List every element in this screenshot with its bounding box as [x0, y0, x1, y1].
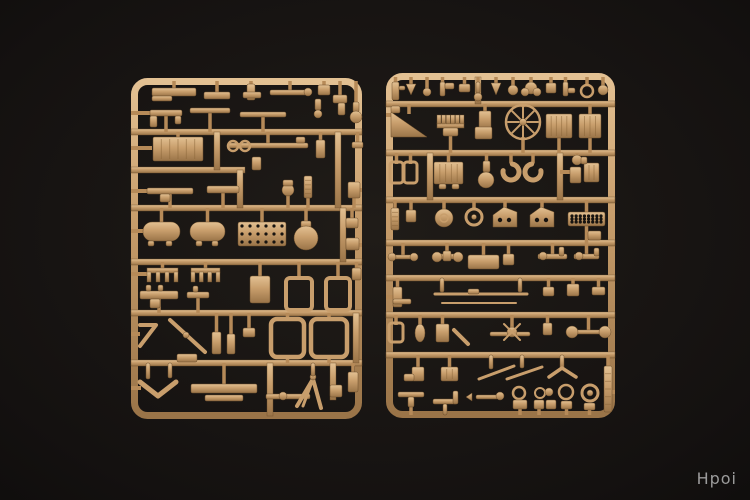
runner-bar	[386, 352, 615, 358]
rect-part	[445, 83, 454, 89]
rect-part	[534, 400, 544, 409]
tooth	[437, 115, 441, 124]
c-hook	[503, 164, 519, 180]
part-hole	[544, 218, 548, 222]
tooth	[216, 272, 220, 282]
rect-part	[440, 82, 445, 96]
plate-hole	[587, 220, 590, 223]
rect-part	[212, 241, 218, 246]
runner-bar	[557, 153, 563, 200]
rect-part	[315, 99, 321, 110]
circle-part	[423, 88, 431, 96]
circle-part	[572, 155, 582, 165]
rect-part	[404, 374, 414, 381]
funnel-part	[406, 84, 416, 95]
rect-part	[346, 218, 358, 228]
rect-part	[483, 161, 490, 172]
plate-hole	[264, 224, 267, 227]
rect-part	[570, 167, 581, 183]
ring-part	[535, 388, 545, 398]
holed-wedge	[493, 207, 517, 227]
tooth	[191, 272, 195, 282]
machine-gun	[140, 291, 178, 299]
rect-part	[243, 328, 255, 337]
rod-part	[507, 367, 542, 379]
plate-hole	[248, 232, 251, 235]
rect-part	[318, 85, 330, 95]
fuel-tank	[190, 222, 225, 241]
rect-part	[346, 238, 359, 250]
sprue-stub	[196, 296, 200, 313]
rect-part	[520, 355, 524, 368]
ribs-part	[584, 163, 599, 182]
rect-part	[453, 391, 458, 404]
rect-part	[581, 157, 587, 164]
part-hole	[498, 218, 502, 222]
pawn-part	[478, 172, 494, 188]
circle-part	[474, 93, 482, 101]
sprue-stub	[131, 332, 140, 336]
comb-part	[191, 268, 220, 282]
sprue-left	[131, 81, 363, 416]
rect-part	[196, 241, 202, 246]
rect-part	[475, 127, 492, 139]
circle-part	[599, 326, 611, 338]
sprue-stub	[261, 115, 265, 132]
plate-hole	[599, 220, 602, 223]
windshield-frame	[286, 278, 312, 310]
rect-part	[148, 241, 154, 246]
tooth	[147, 272, 151, 282]
rect-part	[559, 247, 564, 256]
rect-part	[204, 92, 230, 99]
rect-part	[392, 82, 399, 100]
rect-part	[227, 334, 235, 354]
sprue-stub	[260, 208, 264, 224]
rect-part	[348, 372, 358, 392]
rect-part	[476, 82, 480, 93]
rect-part	[330, 385, 342, 397]
runner-bar	[386, 101, 615, 107]
plate-hole	[570, 214, 573, 217]
rect-part	[146, 285, 151, 291]
plate-hole	[256, 240, 259, 243]
sprue-stub	[221, 191, 225, 208]
rect-part	[568, 88, 575, 93]
rect-part	[333, 95, 347, 103]
rect-part	[311, 363, 315, 376]
runner-bar	[427, 153, 433, 200]
rect-part	[546, 83, 556, 93]
sprue-stub	[588, 136, 592, 153]
frame-part	[404, 162, 417, 183]
sprue-stub	[160, 208, 164, 224]
tooth	[208, 272, 212, 282]
sprue-stub	[258, 262, 262, 278]
plate-hole	[595, 217, 598, 220]
rect-part	[250, 276, 270, 303]
crane-arm	[140, 325, 156, 346]
rect-part	[406, 210, 416, 222]
photo-stage: Hpoi	[0, 0, 750, 500]
rect-part	[468, 255, 499, 269]
ladder-rack	[604, 366, 612, 412]
circle-part	[432, 252, 442, 262]
rect-part	[187, 292, 209, 298]
runner-bar	[131, 167, 245, 173]
plate-hole	[583, 217, 586, 220]
rect-part	[353, 102, 359, 112]
runner-bar	[386, 197, 615, 203]
rect-part	[150, 299, 160, 308]
engine-block	[153, 137, 203, 161]
plate-hole	[272, 232, 275, 235]
runner-bar	[340, 208, 346, 262]
rect-part	[503, 254, 514, 265]
holed-wedge	[530, 207, 554, 227]
plate-hole	[587, 214, 590, 217]
plate-hole	[595, 220, 598, 223]
tooth	[446, 115, 450, 124]
runner-bar	[214, 132, 220, 170]
rect-part	[443, 251, 451, 261]
sprue-stub	[131, 272, 148, 276]
rect-part	[190, 108, 230, 113]
sprue-stub	[131, 111, 150, 115]
plate-hole	[280, 240, 283, 243]
rect-part	[594, 248, 599, 256]
sprue-scene	[0, 0, 750, 500]
perforated-plate	[238, 222, 286, 246]
sprue-stub	[354, 81, 358, 104]
rect-part	[584, 403, 595, 410]
bench-part	[150, 110, 182, 116]
tooth	[174, 272, 178, 282]
rect-part	[398, 392, 424, 397]
sprue-stub	[131, 146, 152, 150]
runner-bar	[131, 259, 362, 265]
wheel-spoke	[512, 111, 521, 120]
line-part	[454, 330, 468, 344]
plate-part	[191, 384, 257, 393]
rect-part	[243, 92, 261, 98]
rect-part	[439, 184, 446, 189]
plate-hole	[256, 232, 259, 235]
circle-part	[566, 326, 578, 338]
rect-part	[546, 400, 556, 409]
flask-part	[294, 226, 318, 250]
v-bracket	[140, 382, 176, 396]
rect-part	[150, 116, 157, 127]
fuel-tank	[143, 222, 180, 241]
tooth	[199, 272, 203, 282]
rect-part	[168, 363, 172, 378]
wheel-spoke	[512, 124, 521, 133]
rect-part	[177, 354, 197, 362]
plate-hole	[579, 217, 582, 220]
rect-part	[489, 355, 493, 369]
circle-part	[545, 388, 553, 396]
rect-part	[543, 323, 552, 335]
rect-part	[588, 231, 601, 240]
sprue-stub	[164, 114, 168, 132]
poly-part	[466, 393, 472, 401]
sprue-stub	[206, 208, 210, 224]
runner-bar	[353, 313, 359, 363]
rect-part	[563, 82, 568, 96]
rect-part	[207, 186, 239, 193]
sprue-stub	[208, 111, 212, 132]
hatch-box	[579, 114, 601, 138]
plate-hole	[599, 217, 602, 220]
rect-part	[348, 182, 360, 198]
plate-hole	[595, 214, 598, 217]
plate-hole	[575, 214, 578, 217]
plate-hole	[587, 217, 590, 220]
rect-part	[443, 404, 447, 415]
plate-hole	[575, 220, 578, 223]
runner-bar	[131, 205, 362, 211]
seat-frame	[311, 319, 347, 357]
wheel-spoke	[525, 124, 534, 133]
sprue-stub	[585, 224, 589, 243]
circle-part	[410, 253, 418, 261]
part-hole	[535, 218, 539, 222]
rect-part	[567, 284, 579, 296]
circle-part	[183, 332, 189, 338]
rect-part	[518, 278, 522, 292]
circle-part	[350, 111, 362, 123]
plate-hole	[240, 232, 243, 235]
syringe-part	[476, 395, 498, 399]
pulley	[513, 387, 525, 399]
plate-hole	[264, 240, 267, 243]
wedge-triangle	[391, 112, 427, 137]
lens-part	[415, 324, 425, 342]
watermark: Hpoi	[697, 469, 737, 488]
rect-part	[146, 363, 150, 379]
sprue-stub	[215, 313, 219, 334]
boot-part	[479, 111, 491, 129]
ring-part	[581, 85, 593, 97]
plate-hole	[583, 214, 586, 217]
plate-hole	[575, 217, 578, 220]
tooth	[455, 115, 459, 124]
plate-hole	[591, 214, 594, 217]
circle-part	[539, 252, 547, 260]
plate-hole	[272, 224, 275, 227]
sprue-stub	[131, 386, 141, 390]
circle-part	[521, 88, 529, 96]
circle-part	[496, 392, 504, 400]
runner-bar	[267, 363, 273, 416]
tooth	[442, 115, 446, 124]
rect-part	[283, 180, 293, 186]
circle-part	[472, 215, 477, 220]
circle-part	[279, 392, 287, 400]
rect-part	[240, 112, 286, 117]
rifle	[147, 188, 193, 194]
sprue-stub	[229, 313, 233, 336]
plate-hole	[264, 232, 267, 235]
rect-part	[152, 96, 172, 101]
ladder-part	[391, 208, 399, 230]
plate-hole	[583, 220, 586, 223]
plate-hole	[591, 220, 594, 223]
spoked-wheel	[506, 105, 540, 139]
rect-part	[296, 137, 305, 143]
circle-part	[587, 390, 593, 396]
wheel-hub	[520, 119, 527, 126]
spade-part	[491, 83, 501, 95]
plate-hole	[570, 220, 573, 223]
ribs-part	[441, 367, 458, 381]
circle-part	[598, 85, 608, 95]
plate-hole	[240, 224, 243, 227]
sprue-stub	[338, 81, 342, 97]
plate-hole	[570, 217, 573, 220]
rect-part	[352, 142, 363, 148]
sprue-stub	[222, 363, 226, 386]
ladder-part	[304, 176, 312, 198]
rect-part	[452, 184, 459, 189]
rect-part	[436, 324, 449, 342]
circle-part	[508, 85, 518, 95]
runner-bar	[335, 132, 341, 208]
rect-part	[338, 103, 345, 115]
tooth	[156, 272, 160, 282]
plate-hole	[591, 217, 594, 220]
sprue-stub	[557, 136, 561, 153]
dome-cap	[435, 209, 453, 227]
grille-strip	[568, 212, 605, 226]
rect-part	[513, 400, 527, 409]
plate-hole	[599, 214, 602, 217]
circle-part	[304, 88, 312, 96]
rect-part	[561, 401, 572, 409]
rect-part	[158, 285, 163, 291]
windshield-frame	[326, 278, 350, 310]
rect-part	[443, 128, 458, 136]
seat-frame	[271, 319, 304, 357]
sprue-stub	[560, 170, 570, 174]
wheel-spoke	[525, 111, 534, 120]
sprue-stub	[407, 104, 411, 114]
circle-part	[575, 252, 583, 260]
comb-part	[437, 115, 464, 128]
runner-bar	[386, 240, 615, 246]
rect-part	[352, 268, 361, 280]
sprue-stub	[587, 315, 591, 332]
sprue-stub	[247, 313, 251, 330]
rect-part	[408, 397, 414, 407]
comb-part	[147, 268, 178, 282]
rect-part	[459, 84, 470, 92]
circle-part	[388, 253, 396, 261]
c-hook	[525, 164, 541, 180]
sprue-stub	[386, 295, 393, 299]
rect-part	[543, 287, 554, 296]
tooth	[460, 115, 464, 124]
plate-hole	[240, 240, 243, 243]
runner-bar	[386, 150, 615, 156]
plate-hole	[248, 240, 251, 243]
circle-part	[314, 110, 322, 118]
sprue-stub	[131, 189, 147, 193]
sprue-stub	[131, 229, 143, 233]
rect-part	[175, 116, 181, 124]
plate-hole	[248, 224, 251, 227]
circle-part	[453, 252, 463, 262]
rect-part	[468, 289, 479, 294]
ribs-part	[434, 162, 463, 184]
rect-part	[391, 106, 400, 113]
pulley	[559, 385, 573, 399]
plate-hole	[280, 232, 283, 235]
circle-part	[533, 88, 541, 96]
rect-part	[592, 287, 605, 295]
rect-part	[393, 299, 411, 304]
plate-hole	[579, 220, 582, 223]
rect-part	[252, 157, 261, 170]
plate-hole	[280, 224, 283, 227]
part-hole	[507, 218, 511, 222]
rect-part	[440, 278, 444, 292]
hatch-box	[546, 114, 572, 138]
step-bar	[152, 88, 196, 96]
rect-part	[166, 241, 172, 246]
rect-part	[205, 395, 243, 401]
tooth	[451, 115, 455, 124]
plate-hole	[256, 224, 259, 227]
rect-part	[316, 140, 325, 158]
rect-part	[160, 194, 170, 202]
plate-hole	[579, 214, 582, 217]
tooth	[165, 272, 169, 282]
runner-bar	[386, 275, 615, 281]
sprue-right	[386, 77, 615, 416]
rect-part	[193, 286, 198, 292]
rect-part	[399, 86, 405, 90]
plate-hole	[272, 240, 275, 243]
v-bracket	[549, 368, 576, 377]
rect-part	[212, 332, 221, 354]
